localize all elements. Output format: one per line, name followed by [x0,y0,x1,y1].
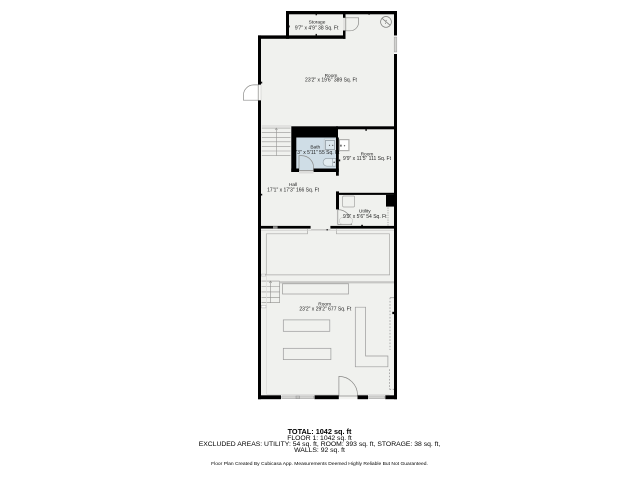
svg-text:9'7" x 4'9" 38 Sq. Ft: 9'7" x 4'9" 38 Sq. Ft [295,25,339,31]
svg-text:WALLS: 92 sq. ft: WALLS: 92 sq. ft [294,447,345,454]
svg-text:9'3" x 5'11" 55 Sq. Ft: 9'3" x 5'11" 55 Sq. Ft [294,150,341,156]
svg-text:23'2" x 19'6" 389 Sq. Ft: 23'2" x 19'6" 389 Sq. Ft [305,78,357,84]
svg-text:17'1" x 17'3" 166 Sq. Ft: 17'1" x 17'3" 166 Sq. Ft [267,187,319,193]
svg-text:9'9" x 11'5" 111 Sq. Ft: 9'9" x 11'5" 111 Sq. Ft [343,156,392,162]
svg-text:Floor Plan Created By Cubicasa: Floor Plan Created By Cubicasa App. Meas… [211,461,428,467]
svg-text:9'9" x 5'6" 54 Sq. Ft: 9'9" x 5'6" 54 Sq. Ft [343,214,387,220]
svg-text:23'2" x 29'2" 677 Sq. Ft: 23'2" x 29'2" 677 Sq. Ft [299,307,351,313]
